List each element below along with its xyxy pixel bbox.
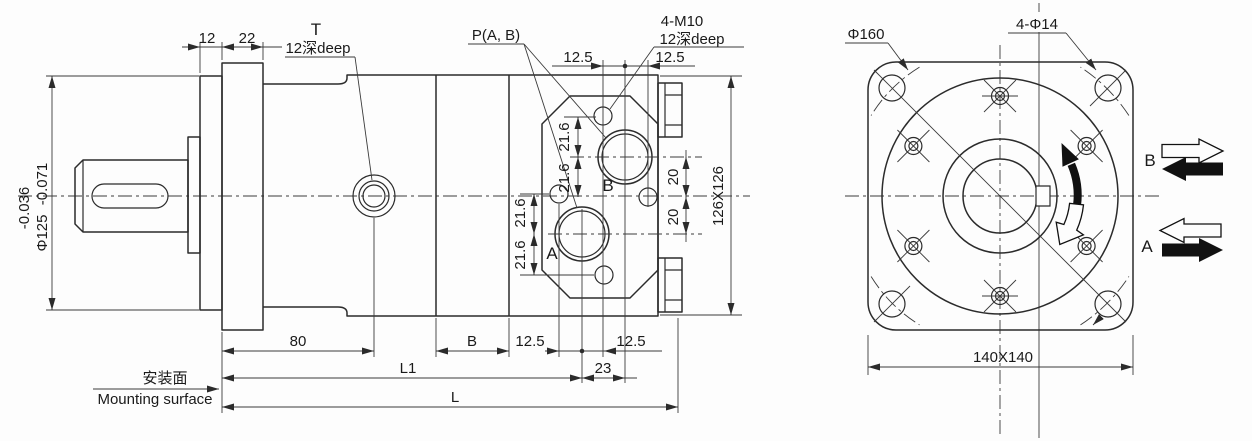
port-b-label: B bbox=[602, 176, 613, 195]
t-depth-note: 12深deep bbox=[285, 40, 350, 57]
dim-21p6-b1: 21.6 bbox=[556, 122, 573, 151]
hex-plug-top bbox=[658, 83, 682, 137]
motor-housing bbox=[263, 75, 658, 316]
dim-20-1: 20 bbox=[665, 169, 682, 186]
shaft-dia-label: Φ125 bbox=[34, 215, 51, 252]
flow-arrow-b-out bbox=[1162, 139, 1223, 163]
ports-note: P(A, B) bbox=[472, 27, 520, 44]
dim-12p5-top-left: 12.5 bbox=[563, 49, 592, 66]
dim-12-label: 12 bbox=[199, 30, 216, 47]
t-port-label: T bbox=[311, 20, 321, 39]
m10-depth-note: 12深deep bbox=[659, 31, 724, 48]
dim-21p6-b2: 21.6 bbox=[556, 163, 573, 192]
dim-126x126: 126X126 bbox=[710, 166, 727, 226]
m10-note: 4-M10 bbox=[661, 13, 704, 30]
extension-lines bbox=[46, 42, 742, 413]
mount-surface-cn: 安装面 bbox=[142, 370, 187, 387]
dimension-lines bbox=[52, 47, 731, 407]
flow-arrow-b-in bbox=[1162, 157, 1223, 181]
flow-arrow-a-out bbox=[1160, 219, 1221, 243]
m10-hole bbox=[595, 266, 613, 284]
line-b-label: B bbox=[1144, 151, 1155, 170]
dim-b: B bbox=[467, 333, 477, 350]
dim-20-2: 20 bbox=[665, 209, 682, 226]
hex-plug-bottom bbox=[658, 258, 682, 312]
dim-l: L bbox=[451, 389, 459, 406]
mount-surface-en: Mounting surface bbox=[97, 391, 212, 408]
dim-12p5-top-right: 12.5 bbox=[655, 49, 684, 66]
dim-80: 80 bbox=[290, 333, 307, 350]
keyway-front bbox=[1036, 186, 1050, 206]
side-view: 12 22 T 12深deep P(A, B) 4-M10 12深deep 12… bbox=[16, 13, 750, 413]
dim-l1: L1 bbox=[400, 360, 417, 377]
drawing-svg: 12 22 T 12深deep P(A, B) 4-M10 12深deep 12… bbox=[0, 0, 1252, 441]
flow-arrow-a-in bbox=[1162, 238, 1223, 262]
front-view: Φ160 4-Φ14 140X140 B A bbox=[845, 3, 1223, 438]
flow-arrows-b bbox=[1162, 139, 1223, 181]
line-a-label: A bbox=[1141, 237, 1153, 256]
bolt-circle-label: Φ160 bbox=[848, 26, 885, 43]
dim-21p6-a1: 21.6 bbox=[512, 198, 529, 227]
engineering-drawing: 12 22 T 12深deep P(A, B) 4-M10 12深deep 12… bbox=[0, 0, 1252, 441]
dim-22-label: 22 bbox=[239, 30, 256, 47]
dim-12p5-bot-right: 12.5 bbox=[616, 333, 645, 350]
flow-arrows-a bbox=[1160, 219, 1223, 263]
shaft-tol-upper: -0.036 bbox=[16, 187, 33, 230]
dim-140x140: 140X140 bbox=[973, 349, 1033, 366]
corner-holes-label: 4-Φ14 bbox=[1016, 16, 1058, 33]
dim-21p6-a2: 21.6 bbox=[512, 240, 529, 269]
port-a-label: A bbox=[546, 244, 558, 263]
pilot-spigot bbox=[200, 76, 222, 310]
shaft-tol-lower: -0.071 bbox=[34, 163, 51, 206]
shaft-collar bbox=[188, 137, 200, 253]
screw bbox=[897, 130, 929, 162]
screw bbox=[897, 230, 929, 262]
dim-23: 23 bbox=[595, 360, 612, 377]
dim-12p5-bot-left: 12.5 bbox=[515, 333, 544, 350]
mounting-flange-side bbox=[222, 63, 263, 330]
